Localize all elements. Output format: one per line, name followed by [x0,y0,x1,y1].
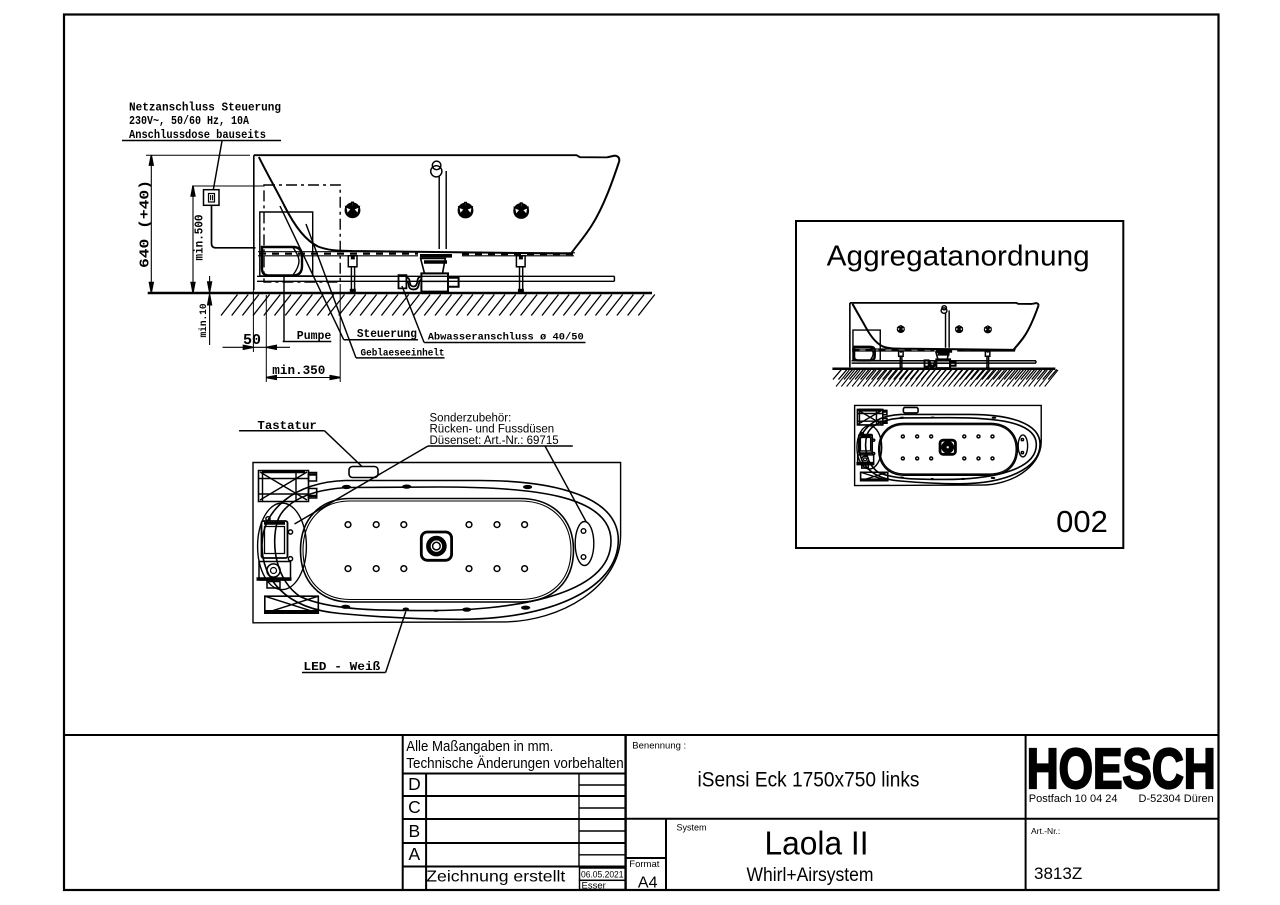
svg-text:D: D [408,774,421,794]
svg-text:50: 50 [243,332,261,349]
svg-text:Steuerung: Steuerung [357,328,417,341]
svg-text:640 (+40): 640 (+40) [139,180,154,268]
svg-text:Pumpe: Pumpe [297,330,332,343]
svg-text:A4: A4 [638,875,658,892]
svg-text:D-52304 Düren: D-52304 Düren [1139,793,1214,805]
svg-text:Format: Format [629,859,659,870]
svg-text:min.500: min.500 [194,214,207,260]
svg-text:C: C [408,797,421,817]
svg-text:Esser: Esser [582,880,606,891]
svg-text:Abwasseranschluss ø 40/50: Abwasseranschluss ø 40/50 [428,332,584,344]
svg-text:Netzanschluss Steuerung: Netzanschluss Steuerung [129,102,281,115]
svg-text:002: 002 [1056,504,1108,539]
svg-text:System: System [677,823,707,833]
svg-text:min.10: min.10 [198,304,210,338]
svg-text:Technische Änderungen vorbehal: Technische Änderungen vorbehalten [406,755,623,772]
svg-text:Zeichnung erstellt: Zeichnung erstellt [426,869,566,886]
svg-text:Art.-Nr.:: Art.-Nr.: [1031,826,1060,836]
svg-text:Düsenset: Art.-Nr.: 69715: Düsenset: Art.-Nr.: 69715 [430,435,559,447]
svg-text:Alle Maßangaben in mm.: Alle Maßangaben in mm. [406,738,553,755]
svg-text:Postfach 10 04 24: Postfach 10 04 24 [1029,793,1118,805]
svg-text:min.350: min.350 [272,363,325,378]
svg-text:Laola II: Laola II [765,825,869,862]
svg-text:3813Z: 3813Z [1034,864,1082,883]
svg-text:230V~, 50/60 Hz, 10A: 230V~, 50/60 Hz, 10A [129,115,249,128]
svg-text:Aggregatanordnung: Aggregatanordnung [827,241,1090,273]
svg-text:Whirl+Airsystem: Whirl+Airsystem [747,864,874,886]
svg-text:Geblaeseeinhelt: Geblaeseeinhelt [361,348,445,360]
svg-text:A: A [409,844,421,864]
svg-text:HOESCH: HOESCH [1027,737,1216,801]
svg-text:B: B [409,821,421,841]
svg-text:Benennung :: Benennung : [632,740,686,751]
svg-text:Rücken- und Fussdüsen: Rücken- und Fussdüsen [430,424,555,436]
svg-text:iSensi Eck 1750x750 links: iSensi Eck 1750x750 links [698,769,920,792]
svg-text:LED - Weiß: LED - Weiß [303,660,380,674]
svg-text:06.05.2021: 06.05.2021 [581,870,624,881]
